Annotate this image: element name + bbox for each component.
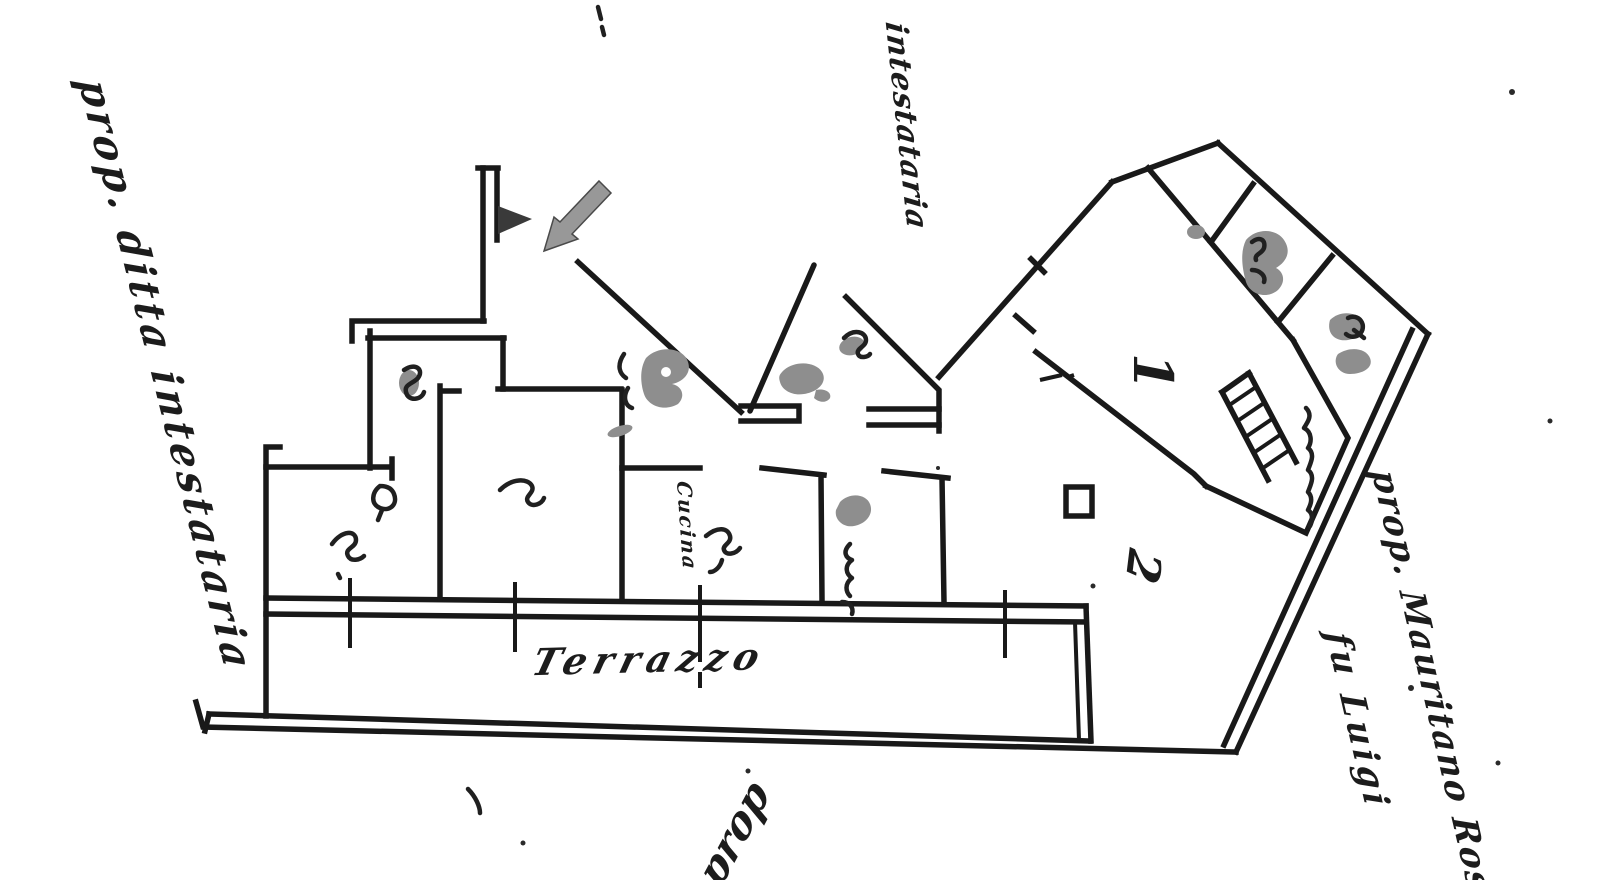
scanned-floor-plan-page: prop. ditta intestataria intestataria pr… [0,0,1600,880]
room-number-1: 1 [1126,353,1180,391]
entrance-arrow-icon [544,181,611,251]
kitchen-label: Cucina [674,481,700,572]
terrace-label: Terrazzo [528,638,770,681]
photocopy-smudges [399,225,1371,526]
ink-squiggles [332,7,1364,813]
door-swing-marker [498,206,532,234]
plan-walls [196,143,1428,752]
